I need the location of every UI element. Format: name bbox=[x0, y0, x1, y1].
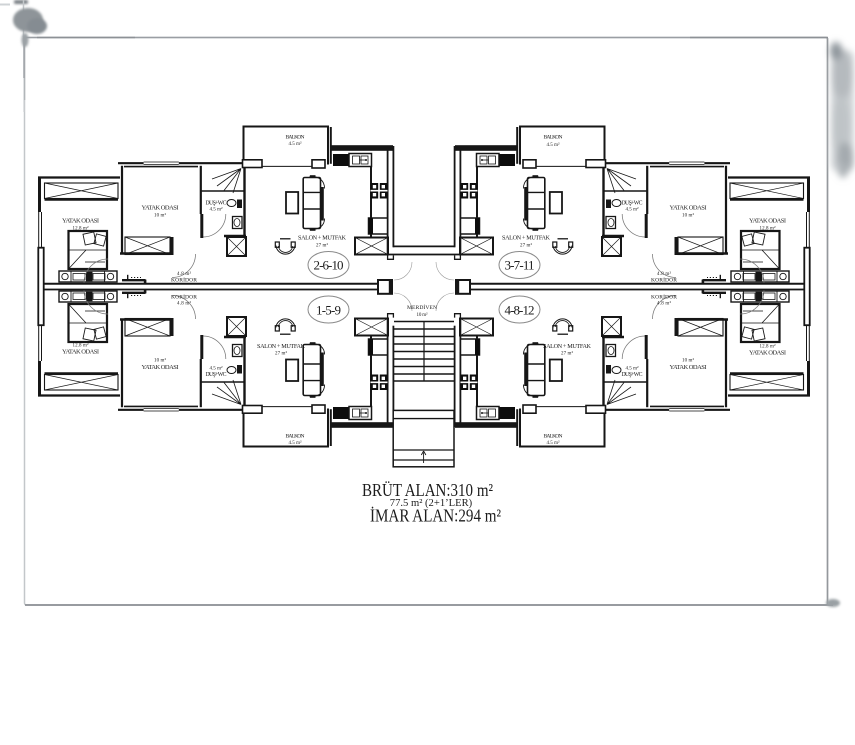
svg-text:4.5 m²: 4.5 m² bbox=[289, 440, 303, 446]
svg-text:4.5 m²: 4.5 m² bbox=[289, 141, 303, 147]
svg-text:4.8 m²: 4.8 m² bbox=[177, 301, 192, 307]
svg-text:10 m²: 10 m² bbox=[154, 358, 167, 364]
svg-text:27 m²: 27 m² bbox=[520, 243, 533, 249]
svg-text:YATAK ODASI: YATAK ODASI bbox=[749, 350, 786, 357]
svg-text:10 m²: 10 m² bbox=[682, 213, 695, 219]
svg-text:BALKON: BALKON bbox=[286, 135, 305, 141]
svg-text:SALON + MUTFAK: SALON + MUTFAK bbox=[257, 343, 306, 350]
svg-text:YATAK ODASI: YATAK ODASI bbox=[62, 218, 99, 225]
svg-text:KORİDOR: KORİDOR bbox=[651, 277, 677, 284]
svg-text:YATAK ODASI: YATAK ODASI bbox=[670, 205, 707, 212]
svg-text:SALON + MUTFAK: SALON + MUTFAK bbox=[543, 343, 592, 350]
svg-text:KORİDOR: KORİDOR bbox=[651, 294, 677, 301]
svg-text:4-8-12: 4-8-12 bbox=[505, 303, 535, 318]
svg-text:12.8 m²: 12.8 m² bbox=[73, 226, 90, 232]
svg-text:10 m²: 10 m² bbox=[682, 358, 695, 364]
svg-text:BRÜT ALAN:310 m²: BRÜT ALAN:310 m² bbox=[362, 480, 493, 500]
svg-text:YATAK ODASI: YATAK ODASI bbox=[670, 364, 707, 371]
svg-text:YATAK ODASI: YATAK ODASI bbox=[142, 205, 179, 212]
svg-text:4.5 m²: 4.5 m² bbox=[210, 207, 224, 213]
svg-text:3-7-11: 3-7-11 bbox=[505, 258, 535, 273]
svg-text:İMAR ALAN:294 m²: İMAR ALAN:294 m² bbox=[370, 506, 501, 526]
svg-text:2-6-10: 2-6-10 bbox=[314, 258, 344, 273]
svg-text:KORİDOR: KORİDOR bbox=[171, 277, 197, 284]
svg-text:4.5 m²: 4.5 m² bbox=[626, 366, 640, 372]
svg-text:27 m²: 27 m² bbox=[561, 351, 574, 357]
svg-text:27 m²: 27 m² bbox=[275, 351, 288, 357]
svg-text:KORİDOR: KORİDOR bbox=[171, 294, 197, 301]
svg-text:DUŞ+WC: DUŞ+WC bbox=[622, 201, 643, 207]
svg-text:12.8 m²: 12.8 m² bbox=[760, 226, 777, 232]
svg-text:4.8 m²: 4.8 m² bbox=[657, 301, 672, 307]
svg-text:MERDİVEN: MERDİVEN bbox=[407, 304, 437, 311]
svg-text:DUŞ+WC: DUŞ+WC bbox=[206, 201, 227, 207]
svg-text:4.5 m²: 4.5 m² bbox=[210, 366, 224, 372]
svg-text:4.8 m²: 4.8 m² bbox=[177, 271, 192, 277]
svg-text:BALKON: BALKON bbox=[544, 135, 563, 141]
svg-text:DUŞ+WC: DUŞ+WC bbox=[622, 372, 643, 378]
svg-text:1-5-9: 1-5-9 bbox=[316, 303, 341, 318]
svg-text:4.5 m²: 4.5 m² bbox=[626, 207, 640, 213]
svg-text:27 m²: 27 m² bbox=[316, 243, 329, 249]
svg-text:YATAK ODASI: YATAK ODASI bbox=[142, 364, 179, 371]
svg-text:10 m²: 10 m² bbox=[154, 213, 167, 219]
svg-text:YATAK ODASI: YATAK ODASI bbox=[749, 218, 786, 225]
svg-text:DUŞ+WC: DUŞ+WC bbox=[206, 372, 227, 378]
svg-text:4.5 m²: 4.5 m² bbox=[547, 142, 561, 148]
svg-text:YATAK ODASI: YATAK ODASI bbox=[62, 349, 99, 356]
svg-text:10 m²: 10 m² bbox=[417, 312, 429, 318]
svg-text:SALON + MUTFAK: SALON + MUTFAK bbox=[502, 235, 551, 242]
svg-text:4.8 m²: 4.8 m² bbox=[657, 271, 672, 277]
svg-text:4.5 m²: 4.5 m² bbox=[547, 440, 561, 446]
svg-text:BALKON: BALKON bbox=[544, 434, 563, 440]
svg-text:SALON + MUTFAK: SALON + MUTFAK bbox=[298, 235, 347, 242]
svg-text:BALKON: BALKON bbox=[286, 434, 305, 440]
